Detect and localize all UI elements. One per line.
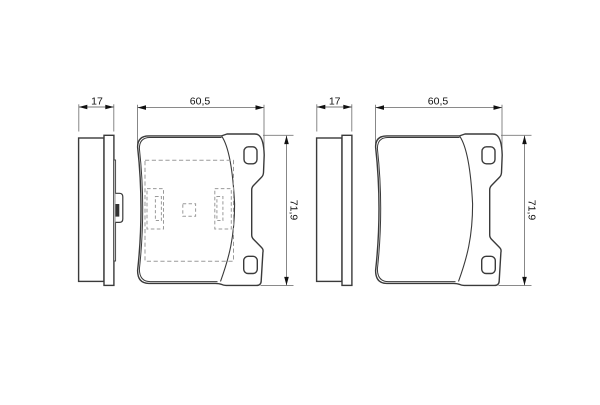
svg-text:17: 17 [91, 96, 103, 108]
svg-text:71,9: 71,9 [287, 200, 299, 221]
svg-text:60,5: 60,5 [190, 96, 211, 108]
svg-text:60,5: 60,5 [428, 96, 449, 108]
svg-text:17: 17 [329, 96, 341, 108]
svg-text:71,9: 71,9 [525, 200, 537, 221]
